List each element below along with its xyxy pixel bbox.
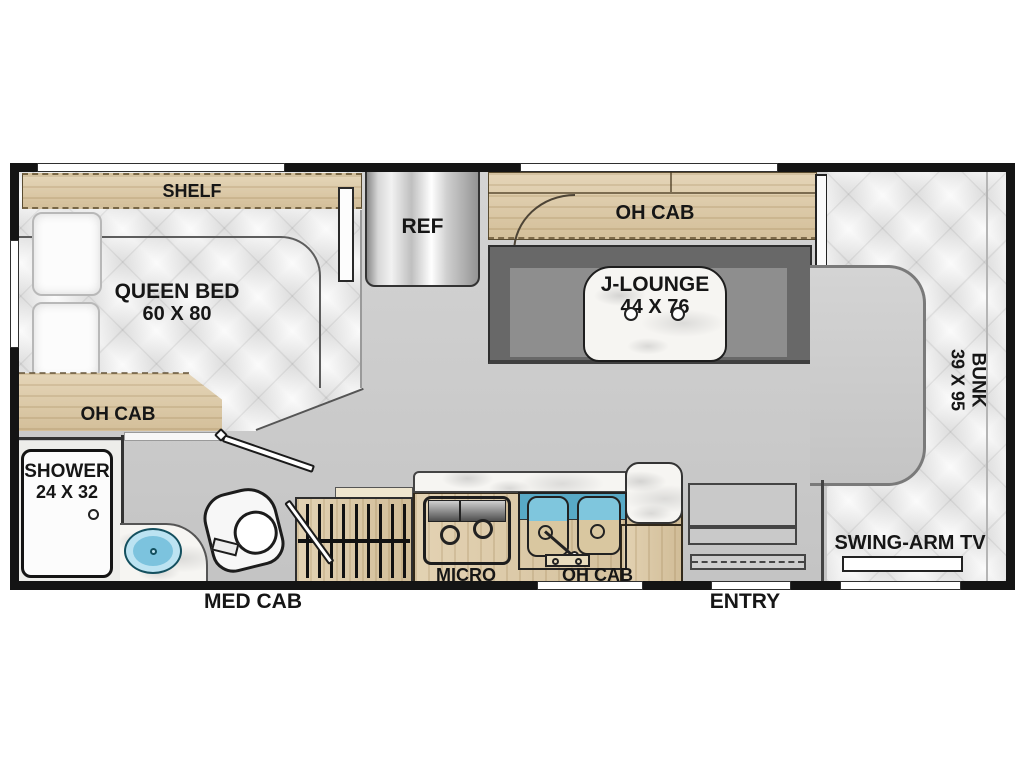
sink-drain	[590, 524, 605, 539]
bunk-label-line1: BUNK	[967, 323, 988, 438]
bedroom-oh-cab-label: OH CAB	[33, 405, 203, 426]
microwave-divider	[459, 501, 461, 521]
dinette-oh-cab-divider	[670, 172, 672, 192]
rv-floorplan: QUEEN BED 60 X 80 SHELF OH CAB REF OH CA…	[0, 0, 1024, 768]
entry-step	[688, 527, 797, 545]
med-cab-label: MED CAB	[193, 591, 313, 614]
wall-left	[10, 163, 19, 590]
entry-bunk-divider	[821, 480, 824, 581]
shelf-label: SHELF	[23, 182, 361, 201]
ref-label: REF	[402, 216, 444, 239]
entry-step-lower	[690, 554, 806, 570]
bath-wall-line-vertical	[121, 435, 124, 523]
queen-bed-label: QUEEN BED 60 X 80	[77, 281, 277, 325]
burner	[473, 519, 493, 539]
shower-dims: 24 X 32	[24, 483, 110, 502]
bedroom-partition	[338, 187, 354, 282]
soap-dish-knob	[552, 558, 559, 565]
floor-notch	[810, 265, 926, 486]
bath-wall-line	[19, 437, 123, 440]
table-leg	[671, 307, 685, 321]
dinette-oh-cab-shelf-line	[488, 192, 817, 194]
entry-step-tread-line	[692, 561, 804, 563]
table-leg	[624, 307, 638, 321]
window-bottom-bunk	[840, 581, 961, 590]
entry-label: ENTRY	[685, 591, 805, 614]
window-top-dinette	[520, 163, 778, 172]
window-top-bedroom	[37, 163, 285, 172]
window-left-bedroom	[10, 240, 19, 348]
swing-arm-tv-label: SWING-ARM TV	[830, 533, 990, 555]
kitchen-counter-top	[413, 471, 627, 493]
shower-drain	[88, 509, 99, 520]
wall-right	[1006, 163, 1015, 590]
counter-end-cap	[625, 462, 683, 524]
shower-label: SHOWER	[24, 462, 110, 483]
entry-landing	[688, 483, 797, 527]
window-bottom-kitchen	[537, 581, 643, 590]
j-lounge-label: J-LOUNGE	[585, 274, 725, 297]
soap-dish-knob	[575, 558, 582, 565]
bath-doorway	[124, 432, 222, 441]
swing-arm-tv	[842, 556, 963, 572]
refrigerator: REF	[365, 167, 480, 287]
j-lounge-table: J-LOUNGE 44 X 76	[583, 266, 727, 362]
bath-sink-drain	[150, 548, 157, 555]
burner	[440, 525, 460, 545]
bedroom-oh-cab-edge	[19, 372, 189, 374]
dinette-oh-cab-edge	[488, 237, 817, 239]
shower-stall: SHOWER 24 X 32	[21, 449, 113, 578]
microwave	[428, 500, 506, 522]
bunk-label: BUNK 39 X 95	[938, 323, 988, 438]
queen-bed-label-line1: QUEEN BED	[77, 281, 277, 304]
queen-bed-dims: 60 X 80	[77, 304, 277, 326]
bunk-dims: 39 X 95	[948, 323, 967, 438]
dinette-oh-cab-label: OH CAB	[560, 203, 750, 225]
bed-edge-line-right	[360, 210, 362, 388]
entry-door-opening	[711, 581, 791, 590]
shelf-cabinet: SHELF	[22, 173, 362, 209]
j-lounge-dims: 44 X 76	[585, 297, 725, 319]
